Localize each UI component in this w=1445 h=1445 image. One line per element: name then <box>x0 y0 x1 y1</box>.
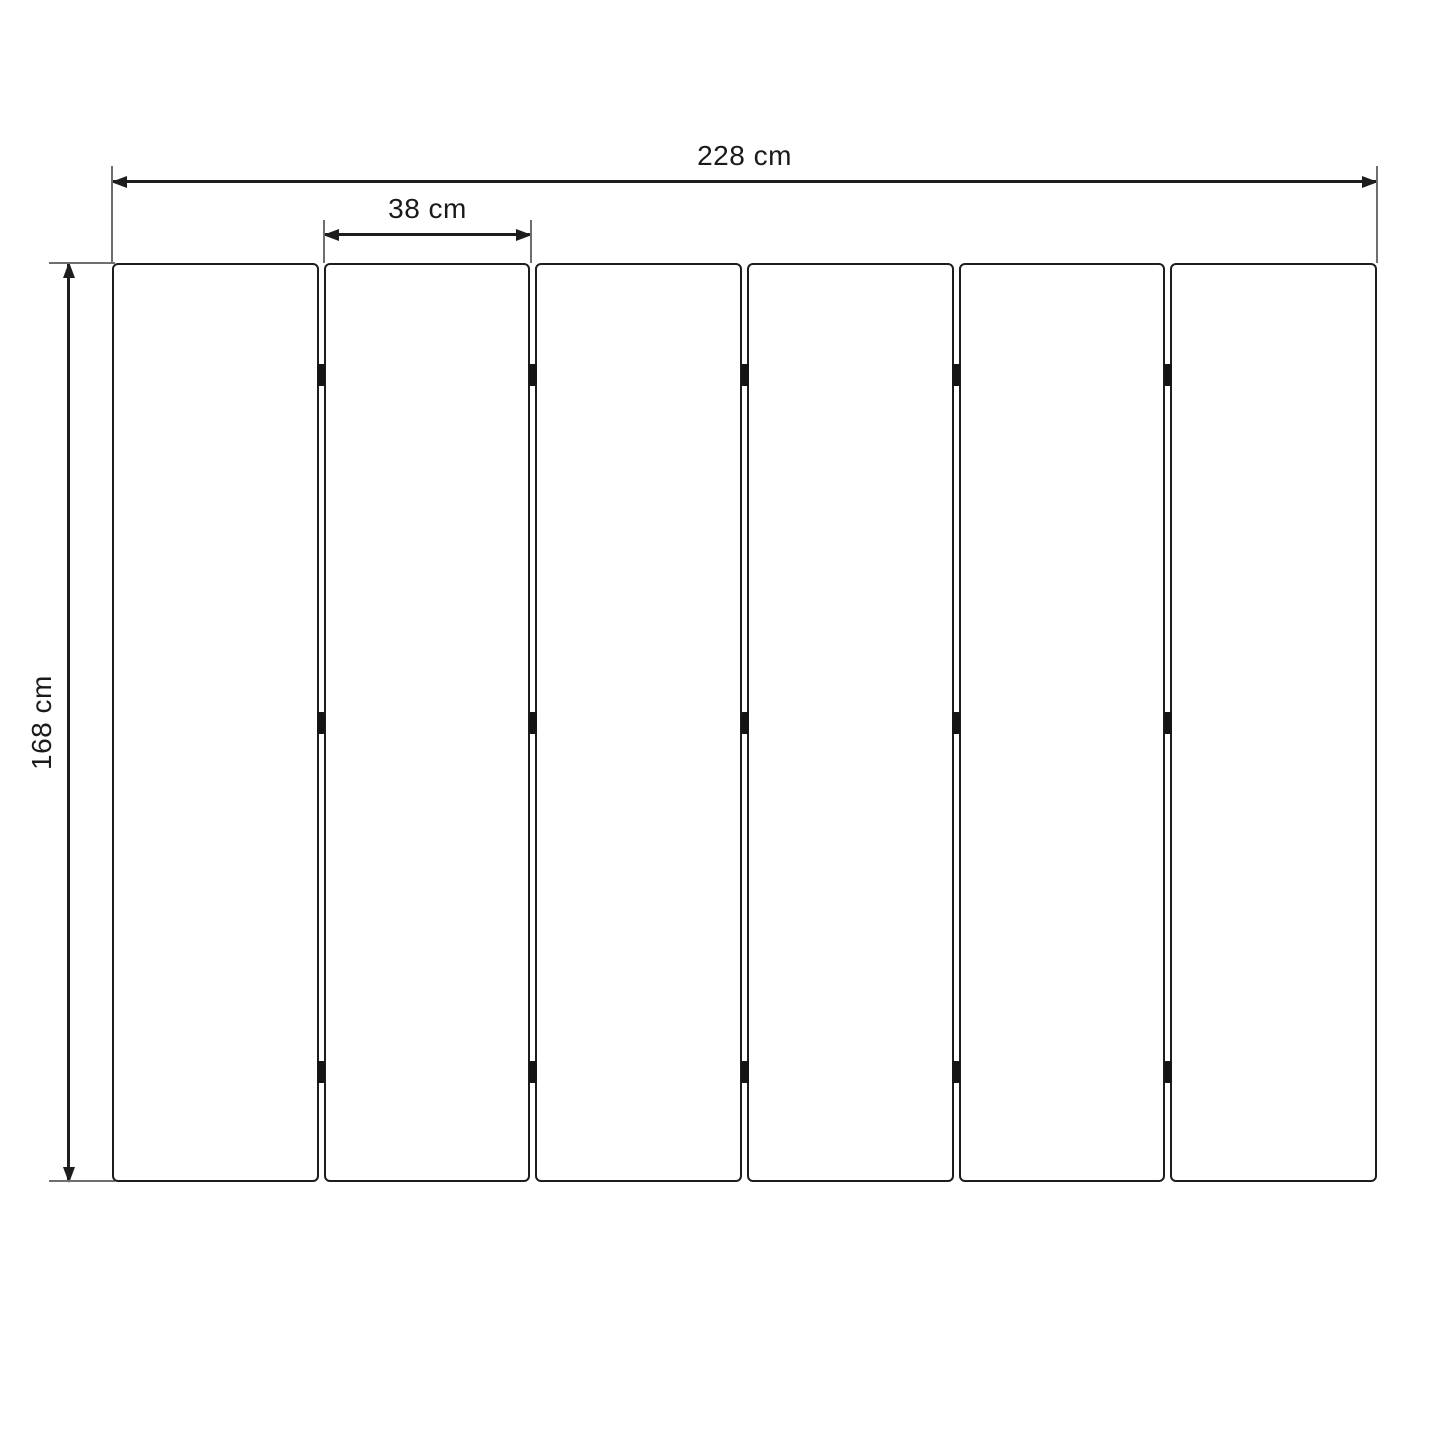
hinge-connector <box>741 364 749 386</box>
hinge-connector <box>529 1061 537 1083</box>
panel <box>112 263 319 1182</box>
extension-line-panel-right <box>530 220 532 263</box>
hinge-connector <box>1164 364 1172 386</box>
hinge-connector <box>1164 712 1172 734</box>
dimension-label-panel-width: 38 cm <box>324 193 531 225</box>
dimension-label-total-width: 228 cm <box>112 140 1377 172</box>
extension-line-total-left <box>111 166 113 263</box>
panel <box>535 263 742 1182</box>
hinge-connector <box>741 1061 749 1083</box>
hinge-connector <box>317 364 325 386</box>
dimension-line-total-width <box>112 180 1377 183</box>
diagram-canvas: 228 cm 38 cm 168 cm <box>0 0 1445 1445</box>
hinge-connector <box>952 1061 960 1083</box>
extension-line-panel-left <box>323 220 325 263</box>
panel <box>747 263 954 1182</box>
hinge-connector <box>317 1061 325 1083</box>
hinge-connector <box>317 712 325 734</box>
dimension-line-panel-width <box>324 233 531 236</box>
hinge-connector <box>952 364 960 386</box>
extension-line-total-right <box>1376 166 1378 263</box>
dimension-label-height: 168 cm <box>22 263 62 1182</box>
extension-line-height-bottom <box>49 1180 115 1182</box>
extension-line-height-top <box>49 262 115 264</box>
dimension-line-height <box>67 263 70 1182</box>
panel-row <box>112 263 1377 1182</box>
panel <box>1170 263 1377 1182</box>
arrowhead-up-icon <box>63 262 75 278</box>
hinge-connector <box>741 712 749 734</box>
arrowhead-left-icon <box>323 229 339 241</box>
panel <box>959 263 1166 1182</box>
panel <box>324 263 531 1182</box>
hinge-connector <box>529 364 537 386</box>
arrowhead-left-icon <box>111 176 127 188</box>
hinge-connector <box>529 712 537 734</box>
hinge-connector <box>952 712 960 734</box>
hinge-connector <box>1164 1061 1172 1083</box>
